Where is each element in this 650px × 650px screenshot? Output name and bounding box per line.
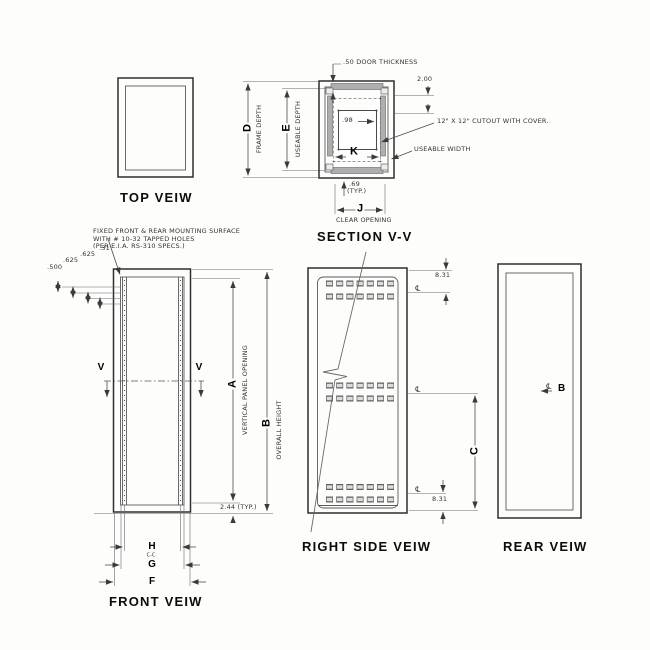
top-view-drawing <box>118 78 193 177</box>
dim-letter-h: H <box>147 542 157 552</box>
section-view-title: SECTION V-V <box>317 230 413 243</box>
dim-letter-g: G <box>147 560 158 570</box>
section-view-drawing <box>319 81 394 178</box>
dim-letter-d: D <box>243 123 254 134</box>
right-side-view-title: RIGHT SIDE VEIW <box>302 540 431 553</box>
engineering-drawing: TOP VEIW D FRAME DEPTH E USEABLE DEPTH .… <box>0 0 650 650</box>
offset-dim-31: .31 <box>99 245 110 252</box>
door-thickness-label: .50 DOOR THICKNESS <box>343 59 418 66</box>
offset-dim-500: .500 <box>47 264 62 271</box>
mounting-note-line1: FIXED FRONT & REAR MOUNTING SURFACE <box>93 228 240 235</box>
useable-depth-label: USEABLE DEPTH <box>295 101 302 157</box>
dim-2-44: 2.44 (TYP.) <box>220 504 257 511</box>
dim-98: .98 <box>342 117 353 124</box>
centerline-icon: ℄ <box>415 285 420 293</box>
dim-2-00: 2.00 <box>417 76 432 83</box>
dim-h-cc: C-C <box>147 554 156 559</box>
front-view-drawing <box>114 269 191 512</box>
dim-letter-f: F <box>147 577 156 587</box>
dim-letter-c: C <box>470 446 481 457</box>
dim-letter-e: E <box>282 123 293 133</box>
frame-depth-label: FRAME DEPTH <box>256 105 263 153</box>
offset-dim-625b: .625 <box>80 251 95 258</box>
offset-dim-625a: .625 <box>63 257 78 264</box>
centerline-icon: ℄ <box>415 386 420 394</box>
useable-width-label: USEABLE WIDTH <box>414 146 471 153</box>
clear-opening-label: CLEAR OPENING <box>336 217 392 224</box>
centerline-icon: ℄ <box>546 383 551 391</box>
dim-letter-k: K <box>350 147 358 158</box>
centerline-icon: ℄ <box>415 486 420 494</box>
cut-letter-v-right: V <box>196 363 203 373</box>
rear-view-title: REAR VEIW <box>503 540 587 553</box>
dim-69-typ: (TYP.) <box>347 188 366 195</box>
vertical-panel-opening-label: VERTICAL PANEL OPENING <box>242 345 249 435</box>
rear-view-drawing <box>498 264 581 518</box>
cutout-note: 12" X 12" CUTOUT WITH COVER. <box>437 118 549 125</box>
overall-height-label: OVERALL HEIGHT <box>276 400 283 459</box>
right-side-view-drawing <box>308 252 407 532</box>
dim-letter-j: J <box>355 204 364 215</box>
dim-831-bottom: 8.31 <box>432 496 447 503</box>
front-view-title: FRONT VEIW <box>109 595 203 608</box>
rear-b-ref: B <box>558 384 565 394</box>
dim-letter-b: B <box>262 418 273 429</box>
top-view-title: TOP VEIW <box>120 191 193 204</box>
cut-letter-v-left: V <box>98 363 105 373</box>
dim-831-top: 8.31 <box>435 272 450 279</box>
dim-letter-a: A <box>228 379 239 390</box>
